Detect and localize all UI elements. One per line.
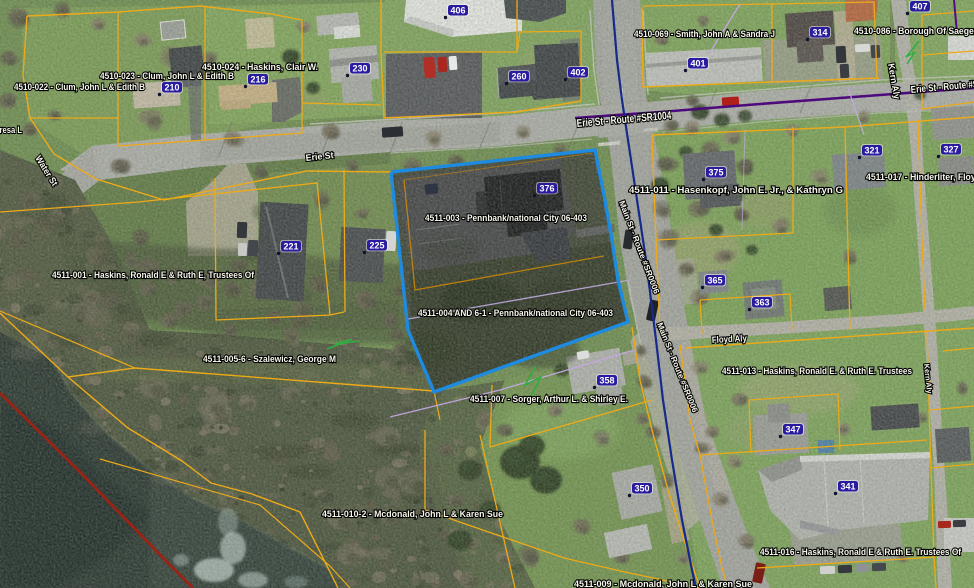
svg-text:4511-009 - Mcdonald, John L &: 4511-009 - Mcdonald, John L & Karen Sue bbox=[574, 579, 752, 588]
svg-text:4511-013 - Haskins, Ronald E.: 4511-013 - Haskins, Ronald E. & Ruth E. … bbox=[722, 366, 912, 376]
svg-text:350: 350 bbox=[635, 484, 650, 494]
svg-text:401: 401 bbox=[691, 59, 706, 69]
svg-text:260: 260 bbox=[512, 72, 527, 82]
svg-text:4510-023 - Clum, John L & Edit: 4510-023 - Clum, John L & Edith B bbox=[100, 71, 234, 81]
svg-text:402: 402 bbox=[571, 68, 586, 78]
svg-text:4510-022 - Clum, John L & Edit: 4510-022 - Clum, John L & Edith B bbox=[14, 82, 145, 92]
svg-text:4511-010-2 - Mcdonald, John L: 4511-010-2 - Mcdonald, John L & Karen Su… bbox=[322, 509, 503, 519]
svg-text:230: 230 bbox=[353, 64, 368, 74]
svg-text:4510-086 - Borough Of Saegert: 4510-086 - Borough Of Saegert bbox=[854, 26, 974, 36]
svg-text:406: 406 bbox=[451, 6, 466, 16]
svg-text:4511-001 - Haskins, Ronald E &: 4511-001 - Haskins, Ronald E & Ruth E, T… bbox=[52, 270, 255, 280]
svg-text:321: 321 bbox=[865, 146, 880, 156]
svg-text:376: 376 bbox=[540, 184, 555, 194]
svg-text:4511-003 - Pennbank/national C: 4511-003 - Pennbank/national City 06-403 bbox=[425, 213, 587, 223]
svg-text:347: 347 bbox=[786, 425, 801, 435]
svg-text:4511-004 AND 6-1 - Pennbank/na: 4511-004 AND 6-1 - Pennbank/national Cit… bbox=[418, 308, 613, 318]
svg-text:375: 375 bbox=[709, 168, 724, 178]
svg-text:327: 327 bbox=[944, 145, 959, 155]
svg-text:4511-011 - Hasenkopf, John E.: 4511-011 - Hasenkopf, John E. Jr., & Kat… bbox=[629, 185, 843, 195]
svg-text:341: 341 bbox=[841, 482, 856, 492]
svg-text:358: 358 bbox=[600, 376, 615, 386]
svg-text:365: 365 bbox=[708, 276, 723, 286]
svg-text:4511-017 - Hinderliter, Floyd: 4511-017 - Hinderliter, Floyd bbox=[866, 172, 974, 182]
svg-text:225: 225 bbox=[370, 241, 385, 251]
svg-text:Floyd Aly: Floyd Aly bbox=[712, 333, 748, 345]
svg-text:363: 363 bbox=[755, 298, 770, 308]
svg-text:Theresa L: Theresa L bbox=[0, 125, 22, 135]
svg-text:407: 407 bbox=[913, 2, 928, 12]
svg-text:4511-005-6 - Szalewicz, George: 4511-005-6 - Szalewicz, George M bbox=[203, 354, 336, 364]
svg-text:4510-069 - Smith, John A & San: 4510-069 - Smith, John A & Sandra J bbox=[634, 29, 775, 39]
svg-text:210: 210 bbox=[165, 83, 180, 93]
svg-text:216: 216 bbox=[251, 75, 266, 85]
svg-text:314: 314 bbox=[813, 28, 828, 38]
svg-text:4511-016 - Haskins, Ronald E &: 4511-016 - Haskins, Ronald E & Ruth E. T… bbox=[760, 547, 962, 557]
svg-text:4511-007 - Sorger, Arthur L. &: 4511-007 - Sorger, Arthur L. & Shirley E… bbox=[470, 394, 628, 404]
svg-text:221: 221 bbox=[284, 242, 299, 252]
